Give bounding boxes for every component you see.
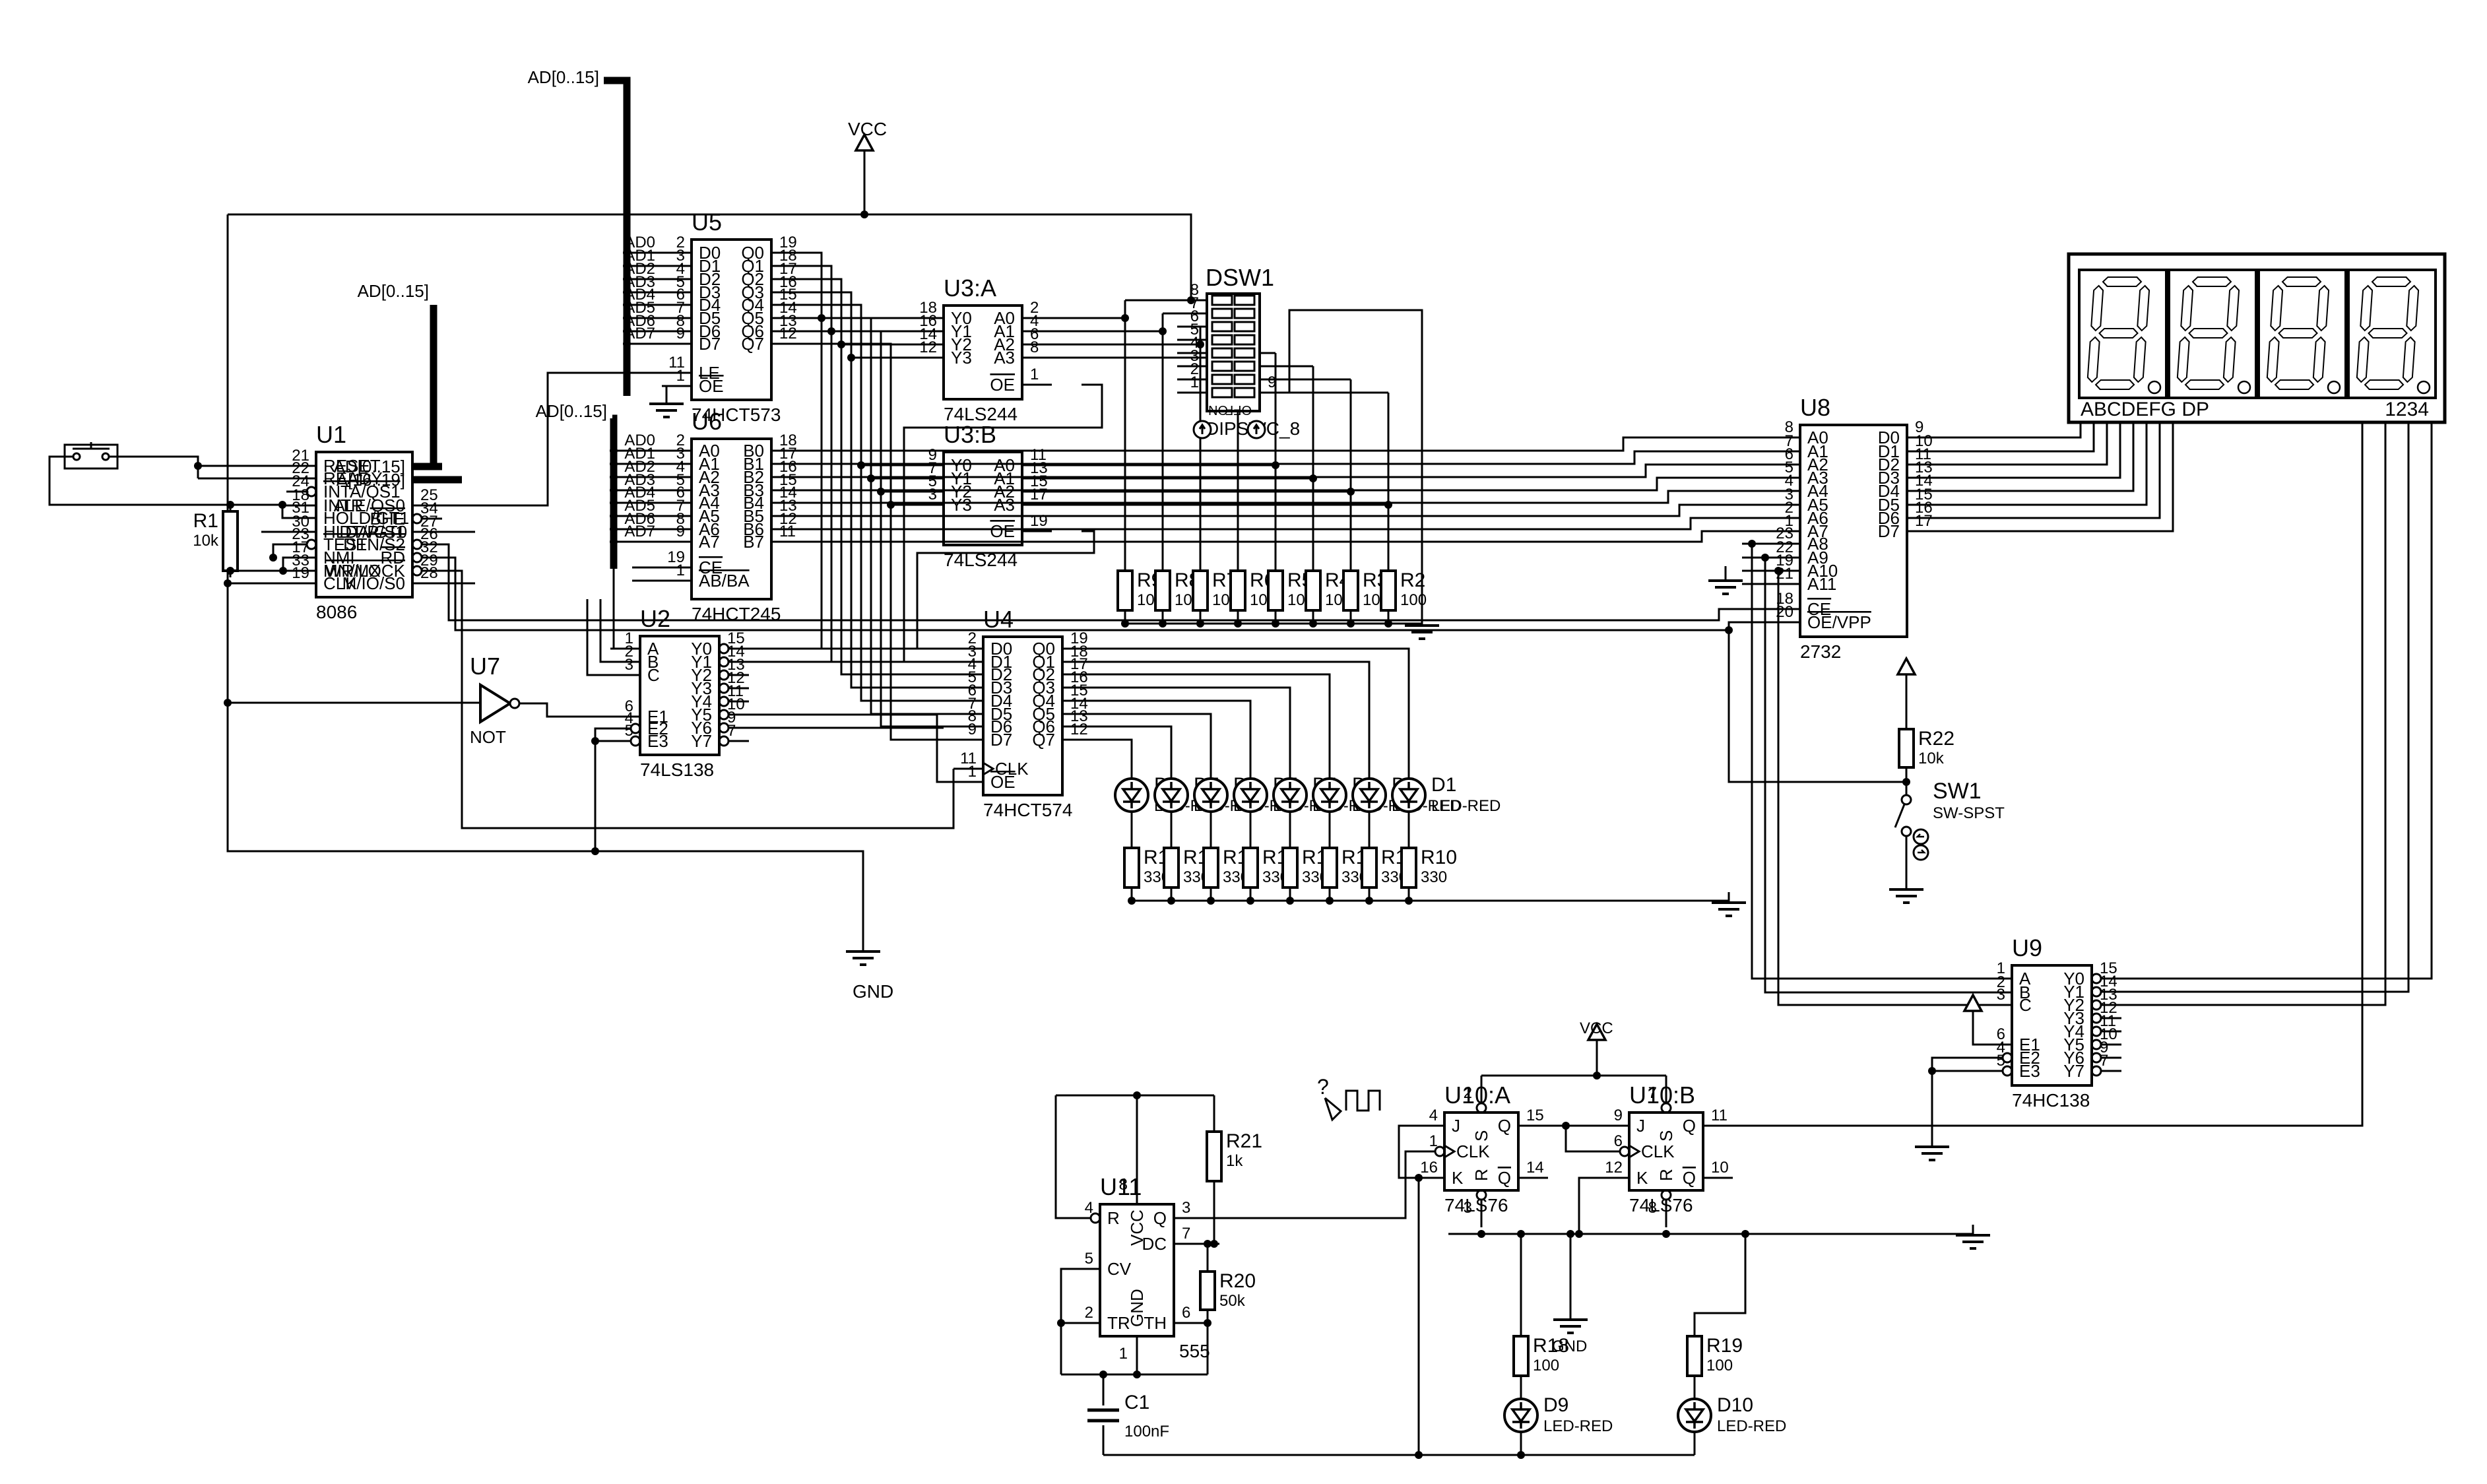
- component-value: 100nF: [1124, 1423, 1169, 1440]
- resistor-body: [1193, 571, 1208, 610]
- junction-dot: [1725, 626, 1733, 634]
- component-value: 100: [1533, 1357, 1559, 1374]
- dip-on-label: ON: [1208, 403, 1228, 417]
- pin-label: J: [1452, 1116, 1460, 1136]
- dip-switch-cell[interactable]: [1235, 335, 1254, 344]
- pin-label: Q: [1683, 1116, 1696, 1136]
- pin-label: Q7: [741, 334, 764, 354]
- component-ref: U3:A: [944, 274, 996, 302]
- resistor-body: [1268, 571, 1283, 610]
- junction-dot: [1234, 620, 1242, 628]
- resistor-body: [1243, 848, 1258, 887]
- digit-pin-labels: 1234: [2385, 399, 2429, 420]
- junction-dot: [1187, 296, 1195, 304]
- pin-number: 3: [1997, 986, 2005, 1004]
- switch-contact: [1902, 827, 1911, 836]
- pin-number: 7: [1182, 1225, 1190, 1242]
- pin-label: Y7: [2063, 1061, 2084, 1081]
- resistor-body: [1899, 729, 1914, 767]
- component-ref: R21: [1226, 1130, 1262, 1152]
- dip-switch-cell[interactable]: [1212, 388, 1232, 397]
- dip-switch-cell[interactable]: [1235, 362, 1254, 371]
- component-part: 74HCT245: [692, 604, 781, 624]
- pin-number: 1: [1190, 373, 1199, 391]
- resistor-body: [1164, 848, 1179, 887]
- junction-dot: [226, 501, 234, 509]
- pin-number: 15: [1526, 1107, 1544, 1124]
- pin-label: Y3: [951, 495, 972, 515]
- decimal-point: [2238, 381, 2250, 393]
- component-ref: U3:B: [944, 421, 996, 448]
- junction-dot: [623, 288, 631, 296]
- pin-label: Q: [1153, 1208, 1167, 1228]
- junction-dot: [867, 474, 875, 482]
- button-contact: [73, 453, 80, 460]
- pin-number: 8: [1030, 339, 1039, 356]
- resistor-body: [1322, 848, 1337, 887]
- junction-dot: [224, 579, 232, 587]
- component-ref: D1: [1431, 774, 1456, 796]
- component-part: 74LS76: [1444, 1195, 1508, 1215]
- pin-label: OE: [699, 376, 724, 396]
- junction-dot: [1159, 620, 1167, 628]
- net-power-label: GND: [1552, 1338, 1587, 1355]
- component-part: 555: [1179, 1341, 1210, 1361]
- component-part: 74HC138: [2012, 1090, 2090, 1111]
- pin-label: CLK: [1641, 1142, 1675, 1161]
- pin-label: Q7: [1032, 730, 1055, 750]
- pin-number: 12: [1605, 1159, 1623, 1177]
- junction-dot: [623, 327, 631, 335]
- pin-number: 9: [1268, 373, 1276, 391]
- junction-dot: [1099, 1371, 1107, 1378]
- component-part: LED-RED: [1543, 1417, 1613, 1435]
- dip-switch-cell[interactable]: [1235, 296, 1254, 305]
- pin-number: 1: [1030, 366, 1039, 383]
- junction-dot: [1741, 1230, 1749, 1238]
- junction-dot: [1159, 327, 1167, 335]
- pin-number: 14: [1526, 1159, 1544, 1177]
- component-ref: R2: [1400, 569, 1425, 591]
- pin-label: J: [1636, 1116, 1645, 1136]
- component-part: 74LS76: [1629, 1195, 1693, 1215]
- pin-label: E3: [2019, 1061, 2040, 1081]
- pin-label: Q: [1498, 1168, 1511, 1188]
- junction-dot: [1593, 1072, 1601, 1080]
- junction-dot: [1384, 620, 1392, 628]
- component-value: 1k: [1226, 1152, 1243, 1170]
- resistor-body: [1343, 571, 1358, 610]
- pin-label: R: [1656, 1169, 1676, 1181]
- bus-net-flag: AD[0..15]: [528, 67, 599, 87]
- pin-label: TH: [1144, 1313, 1167, 1333]
- component-ref: U7: [470, 653, 500, 680]
- net-power-label: VCC: [1580, 1019, 1613, 1037]
- dip-off-label: OFF: [1225, 403, 1252, 417]
- resistor-body: [1124, 848, 1139, 887]
- junction-dot: [610, 499, 618, 507]
- junction-dot: [877, 488, 885, 496]
- resistor-body: [223, 511, 238, 571]
- resistor-body: [1306, 571, 1320, 610]
- junction-dot: [1517, 1230, 1525, 1238]
- pin-label: CLK: [1456, 1142, 1490, 1161]
- junction-dot: [1365, 897, 1373, 905]
- pin-number: 17: [1915, 512, 1933, 530]
- component-value: 50k: [1219, 1292, 1246, 1310]
- pin-label: Q: [1498, 1116, 1511, 1136]
- component-ref: U10:A: [1444, 1081, 1510, 1109]
- junction-dot: [194, 462, 202, 470]
- component-ref: R20: [1219, 1270, 1256, 1292]
- pin-number: 7: [2100, 1052, 2108, 1070]
- pin-number: 5: [1997, 1052, 2005, 1070]
- resistor-body: [1402, 848, 1416, 887]
- junction-dot: [887, 501, 895, 509]
- component-part: 74LS138: [640, 759, 714, 780]
- junction-dot: [827, 327, 835, 335]
- junction-dot: [1204, 1319, 1211, 1327]
- junction-dot: [1566, 1230, 1574, 1238]
- component-ref: U11: [1100, 1173, 1142, 1200]
- junction-dot: [1309, 620, 1317, 628]
- pin-number: 9: [1614, 1107, 1623, 1124]
- pin-label: M/IO/S0: [342, 573, 405, 593]
- component-ref: U5: [692, 209, 722, 236]
- pin-number: 4: [1085, 1199, 1093, 1217]
- pin-number: 1: [1119, 1345, 1128, 1363]
- junction-dot: [1246, 897, 1254, 905]
- junction-dot: [1167, 897, 1175, 905]
- junction-dot: [623, 275, 631, 283]
- switch-contact: [1902, 795, 1911, 804]
- junction-dot: [1415, 1451, 1423, 1459]
- pin-number: 12: [779, 325, 797, 342]
- pin-label: OE: [990, 521, 1015, 541]
- pin-label: Y7: [691, 731, 712, 751]
- component-value: 10k: [193, 532, 219, 550]
- pin-number: 17: [1030, 486, 1048, 503]
- resistor-body: [1207, 1132, 1221, 1181]
- pin-label: B7: [743, 532, 764, 552]
- junction-dot: [860, 210, 868, 218]
- junction-dot: [1405, 897, 1413, 905]
- net-label: AD7: [624, 523, 655, 540]
- decimal-point: [2148, 381, 2160, 393]
- pin-number: 12: [1070, 721, 1088, 738]
- pin-label: A[16..19]: [337, 470, 405, 490]
- pin-label: D7: [1878, 521, 1900, 541]
- dip-switch-cell[interactable]: [1212, 348, 1232, 358]
- junction-dot: [1204, 1240, 1211, 1248]
- dip-switch-cell[interactable]: [1212, 362, 1232, 371]
- component-ref: C1: [1124, 1392, 1149, 1413]
- pin-number: 9: [676, 523, 685, 540]
- junction-dot: [1517, 1451, 1525, 1459]
- junction-dot: [623, 301, 631, 309]
- pin-number: 10: [1711, 1159, 1729, 1177]
- component-value: 100: [1706, 1357, 1733, 1374]
- pin-label: A3: [994, 348, 1015, 368]
- pin-label: A11: [1807, 574, 1836, 594]
- junction-dot: [610, 486, 618, 494]
- pin-number: 5: [1085, 1250, 1093, 1268]
- pin-number: 2: [1085, 1304, 1093, 1322]
- component-value: 100: [1400, 591, 1427, 609]
- junction-dot: [623, 249, 631, 257]
- component-value: 10k: [1918, 750, 1945, 767]
- decimal-point: [2328, 381, 2340, 393]
- dip-switch-cell[interactable]: [1235, 375, 1254, 384]
- junction-dot: [278, 501, 286, 509]
- pin-label: C: [2019, 995, 2032, 1015]
- junction-dot: [847, 354, 855, 362]
- display-digit-cell: [2169, 270, 2256, 398]
- pin-number: 12: [919, 339, 937, 356]
- component-part: LED-RED: [1431, 797, 1501, 815]
- junction-dot: [857, 461, 865, 469]
- junction-dot: [1562, 1122, 1570, 1130]
- pin-number: 3: [625, 656, 633, 674]
- dip-switch-cell[interactable]: [1212, 322, 1232, 331]
- dip-switch-cell[interactable]: [1235, 388, 1254, 397]
- component-value: 330: [1421, 868, 1447, 886]
- pin-number: 28: [420, 564, 438, 582]
- inverted-output-bubble: [510, 699, 519, 708]
- junction-dot: [1477, 1230, 1485, 1238]
- component-ref: R22: [1918, 728, 1954, 750]
- junction-dot: [610, 447, 618, 455]
- pin-number: 19: [292, 564, 309, 582]
- junction-dot: [818, 314, 825, 322]
- pin-label: VCC: [1127, 1210, 1147, 1246]
- display-digit-cell: [2348, 270, 2436, 398]
- junction-dot: [1286, 897, 1294, 905]
- junction-dot: [279, 567, 287, 575]
- pin-number: 1: [968, 763, 977, 781]
- junction-dot: [591, 847, 599, 855]
- junction-dot: [1057, 1319, 1065, 1327]
- bus-net-flag: AD[0..15]: [358, 281, 429, 301]
- pin-label: A3: [994, 495, 1015, 515]
- canvas-background: [0, 0, 2487, 1484]
- pin-label: GND: [1127, 1289, 1147, 1327]
- pin-label: D7: [699, 334, 721, 354]
- junction-dot: [610, 460, 618, 468]
- junction-dot: [1748, 540, 1756, 548]
- junction-dot: [1347, 620, 1355, 628]
- pin-number: 11: [1711, 1107, 1728, 1124]
- component-part: 74HCT574: [983, 800, 1072, 820]
- junction-dot: [1272, 620, 1279, 628]
- pin-label: R: [1107, 1208, 1120, 1228]
- pin-number: 4: [1429, 1107, 1438, 1124]
- junction-dot: [1902, 778, 1910, 786]
- junction-dot: [591, 737, 599, 745]
- pin-label: R: [1471, 1169, 1491, 1181]
- junction-dot: [269, 554, 277, 562]
- pin-label: CV: [1107, 1259, 1132, 1279]
- component-ref: SW1: [1933, 779, 1982, 804]
- pin-label: S: [1471, 1130, 1491, 1142]
- component-ref: U6: [692, 408, 722, 435]
- junction-dot: [837, 340, 845, 348]
- component-ref: U10:B: [1629, 1081, 1695, 1109]
- junction-dot: [1384, 501, 1392, 509]
- dip-switch-cell[interactable]: [1235, 309, 1254, 318]
- junction-dot: [623, 340, 631, 348]
- dip-switch-cell[interactable]: [1212, 335, 1232, 344]
- junction-dot: [1121, 314, 1129, 322]
- component-part: LED-RED: [1717, 1417, 1786, 1435]
- pin-label: OE: [990, 375, 1015, 395]
- component-part: 8086: [316, 602, 357, 622]
- component-ref: R1: [193, 510, 218, 532]
- junction-dot: [1272, 461, 1279, 469]
- component-ref: U8: [1800, 394, 1830, 421]
- component-part: NOT: [470, 727, 506, 747]
- component-ref: DSW1: [1206, 264, 1274, 291]
- net-power-label: GND: [853, 981, 893, 1002]
- pin-number: 11: [779, 523, 796, 540]
- component-ref: D10: [1717, 1394, 1753, 1416]
- pin-label: C: [647, 665, 660, 685]
- schematic-canvas: 2122241831302317331925342726322928RESETR…: [0, 0, 2487, 1484]
- resistor-body: [1687, 1336, 1702, 1376]
- dip-switch-cell[interactable]: [1212, 375, 1232, 384]
- pin-label: K: [1636, 1168, 1648, 1188]
- pin-number: 6: [1182, 1304, 1190, 1322]
- junction-dot: [1133, 1371, 1141, 1378]
- resistor-body: [1381, 571, 1396, 610]
- component-ref: R19: [1706, 1335, 1743, 1357]
- resistor-body: [1200, 1272, 1215, 1310]
- component-ref: U1: [316, 421, 346, 448]
- pin-label: OE: [990, 772, 1016, 792]
- component-part: 74LS244: [944, 550, 1017, 570]
- pin-number: 9: [968, 721, 977, 738]
- bus-net-flag: AD[0..15]: [536, 401, 607, 421]
- pin-number: 1: [1429, 1132, 1438, 1150]
- junction-dot: [1309, 474, 1317, 482]
- junction-dot: [1774, 567, 1782, 575]
- junction-dot: [1121, 620, 1129, 628]
- junction-dot: [623, 262, 631, 270]
- pin-label: A7: [699, 532, 720, 552]
- pin-number: 3: [928, 486, 937, 503]
- resistor-body: [1283, 848, 1297, 887]
- resistor-body: [1231, 571, 1245, 610]
- pin-number: 3: [1182, 1199, 1190, 1217]
- pin-label: K: [1452, 1168, 1464, 1188]
- junction-dot: [610, 473, 618, 481]
- component-part: 2732: [1800, 641, 1841, 662]
- junction-dot: [1662, 1230, 1670, 1238]
- dip-switch-cell[interactable]: [1235, 348, 1254, 358]
- junction-dot: [1928, 1067, 1936, 1075]
- pin-number: 5: [625, 722, 633, 740]
- resistor-body: [1514, 1336, 1528, 1376]
- junction-dot: [623, 314, 631, 322]
- resistor-body: [1118, 571, 1132, 610]
- junction-dot: [1207, 897, 1215, 905]
- junction-dot: [610, 538, 618, 546]
- resistor-body: [1362, 848, 1376, 887]
- pin-number: 1: [676, 562, 685, 579]
- pin-label: D7: [990, 730, 1012, 750]
- junction-dot: [1128, 897, 1136, 905]
- component-ref: R10: [1421, 847, 1457, 868]
- net-power-label: VCC: [848, 119, 887, 139]
- junction-dot: [224, 699, 232, 707]
- probe-question: ?: [1317, 1075, 1329, 1099]
- pin-label: Y3: [951, 348, 972, 368]
- component-ref: D9: [1543, 1394, 1568, 1416]
- pin-label: OE/VPP: [1807, 612, 1871, 632]
- display-digit-cell: [2259, 270, 2346, 398]
- pin-number: 1: [676, 367, 685, 385]
- pin-label: S: [1656, 1130, 1676, 1142]
- seven-segment-display: ABCDEFG DP1234: [2069, 254, 2445, 422]
- pin-number: 9: [676, 325, 685, 342]
- component-ref: U9: [2012, 934, 2042, 961]
- junction-dot: [1196, 620, 1204, 628]
- pin-number: 16: [1420, 1159, 1438, 1177]
- resistor-body: [1204, 848, 1218, 887]
- segment-pin-labels: ABCDEFG DP: [2081, 399, 2209, 420]
- pin-label: AB/BA: [699, 571, 750, 591]
- junction-dot: [1575, 1230, 1583, 1238]
- dip-switch-cell[interactable]: [1235, 322, 1254, 331]
- push-button[interactable]: [65, 442, 117, 468]
- junction-dot: [1133, 1091, 1141, 1099]
- component-ref: U4: [983, 606, 1014, 633]
- pin-label: E3: [647, 731, 668, 751]
- component-ref: U2: [640, 605, 670, 632]
- junction-dot: [226, 567, 234, 575]
- dip-switch-cell[interactable]: [1212, 296, 1232, 305]
- junction-dot: [610, 525, 618, 533]
- junction-dot: [1347, 488, 1355, 496]
- dip-switch-cell[interactable]: [1212, 309, 1232, 318]
- pin-number: 6: [1614, 1132, 1623, 1150]
- junction-dot: [1326, 897, 1334, 905]
- pin-number: 20: [1776, 603, 1793, 621]
- junction-dot: [610, 512, 618, 520]
- component-part: SW-SPST: [1933, 804, 2005, 822]
- button-contact: [102, 453, 109, 460]
- pin-label: Q: [1683, 1168, 1696, 1188]
- junction-dot: [1415, 1174, 1423, 1182]
- pin-number: 7: [727, 722, 736, 740]
- decimal-point: [2418, 381, 2430, 393]
- junction-dot: [1761, 554, 1769, 562]
- display-digit-cell: [2079, 270, 2166, 398]
- pin-number: 19: [1030, 512, 1048, 530]
- resistor-body: [1155, 571, 1170, 610]
